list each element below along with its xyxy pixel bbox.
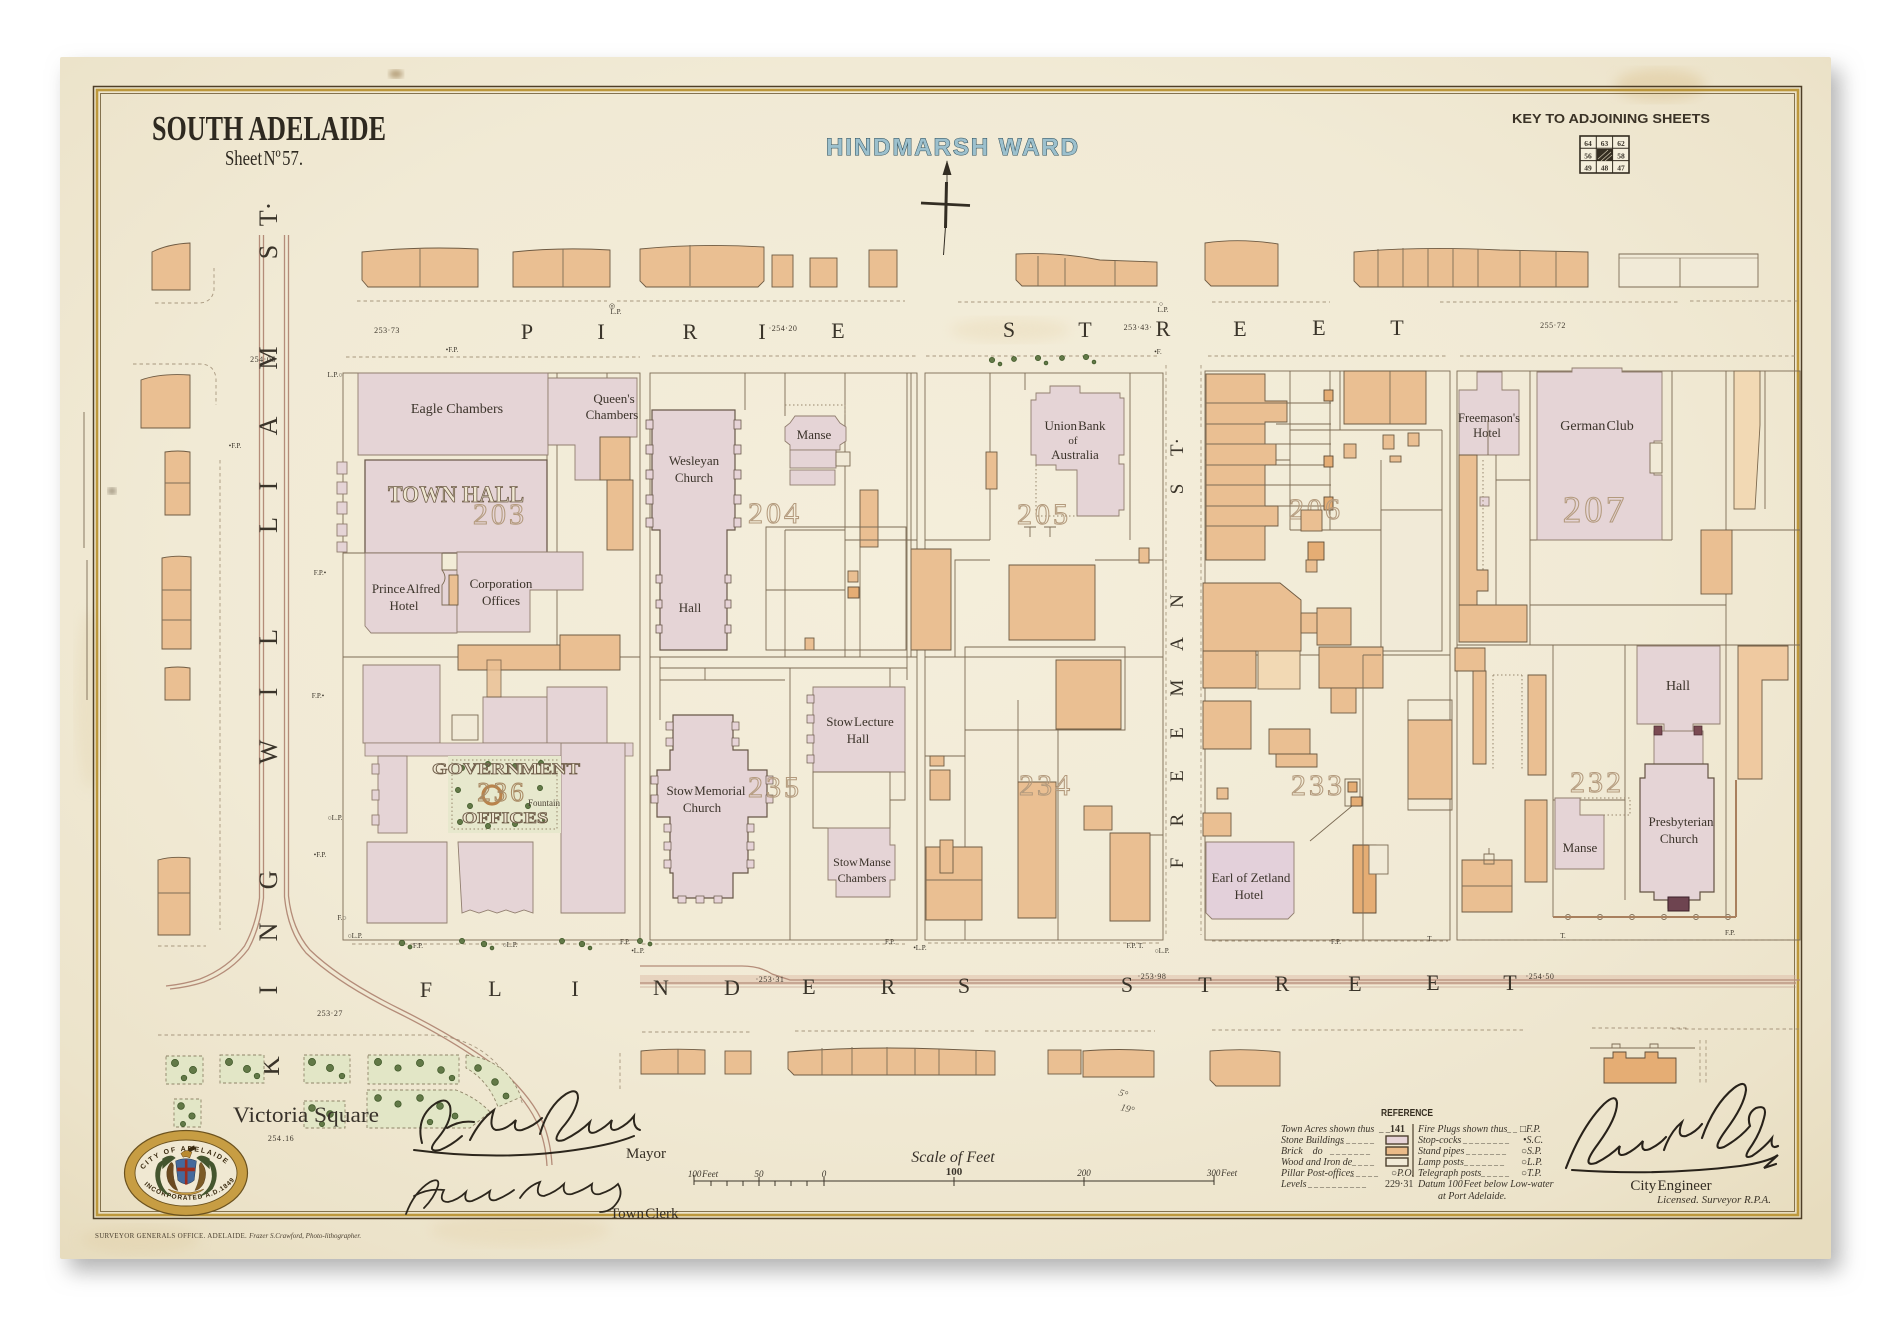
svg-text:255·72: 255·72 (1540, 321, 1566, 330)
svg-text:N: N (653, 975, 669, 1000)
svg-text:Eagle Chambers: Eagle Chambers (411, 402, 503, 417)
svg-text:0: 0 (822, 1169, 827, 1179)
svg-text:Hotel: Hotel (390, 598, 419, 613)
svg-text:○S.P.: ○S.P. (1521, 1146, 1542, 1157)
svg-text:58: 58 (1617, 151, 1625, 160)
svg-text:62: 62 (1617, 139, 1625, 148)
svg-text:Church: Church (683, 800, 722, 815)
svg-text:W: W (254, 739, 283, 764)
svg-text:GOVERNMENT: GOVERNMENT (432, 761, 580, 778)
svg-text:47: 47 (1617, 164, 1625, 173)
svg-text:German Club: German Club (1560, 419, 1634, 434)
svg-text:F: F (420, 977, 432, 1002)
svg-text:I: I (254, 986, 283, 995)
svg-text:Brick do: Brick do (1281, 1146, 1323, 1157)
svg-text:Manse: Manse (1563, 840, 1598, 855)
svg-text:Manse: Manse (797, 427, 832, 442)
svg-text:□F.P.: □F.P. (1520, 1124, 1541, 1135)
svg-text:204: 204 (748, 497, 802, 530)
svg-text:Prince Alfred: Prince Alfred (372, 581, 441, 596)
svg-text:SURVEYOR GENERALS OFFICE. ADEL: SURVEYOR GENERALS OFFICE. ADELAIDE. Fraz… (95, 1232, 361, 1240)
svg-text:S: S (254, 245, 283, 259)
svg-text:233: 233 (1291, 769, 1345, 802)
svg-text:Stand pipes: Stand pipes (1418, 1146, 1464, 1157)
svg-text:Hotel: Hotel (1473, 426, 1501, 440)
svg-text:R: R (881, 974, 896, 999)
svg-text:254·06: 254·06 (250, 355, 276, 364)
svg-text:Presbyterian: Presbyterian (1649, 814, 1714, 829)
svg-text:T·: T· (254, 202, 283, 227)
svg-text:·254·50: ·254·50 (1526, 972, 1555, 981)
svg-text:F.P.•: F.P.• (312, 692, 325, 700)
svg-text:Sheet Nº 57.: Sheet Nº 57. (225, 146, 303, 170)
svg-text:F.P.: F.P. (1725, 929, 1735, 937)
svg-text:F.P.: F.P. (620, 938, 630, 946)
svg-text:236: 236 (477, 777, 527, 807)
svg-text:I: I (254, 688, 283, 697)
svg-text:S: S (1003, 317, 1015, 342)
svg-text:E: E (1167, 727, 1188, 739)
svg-text:Earl of Zetland: Earl of Zetland (1212, 870, 1291, 885)
svg-text:Datum 100 Feet below Low-water: Datum 100 Feet below Low-water (1417, 1179, 1554, 1190)
svg-text:F: F (1167, 858, 1188, 869)
svg-text:Chambers: Chambers (837, 871, 888, 885)
svg-text:Fountain: Fountain (528, 798, 561, 808)
svg-text:205: 205 (1017, 498, 1071, 531)
svg-text:T.: T. (1560, 932, 1566, 940)
svg-text:D: D (724, 975, 740, 1000)
svg-text:SOUTH ADELAIDE: SOUTH ADELAIDE (152, 109, 386, 148)
svg-text:at Port Adelaide.: at Port Adelaide. (1438, 1191, 1506, 1202)
svg-text:I: I (597, 319, 604, 344)
svg-text:A: A (1167, 637, 1188, 651)
svg-text:F.P.•: F.P.• (314, 569, 327, 577)
svg-text:E: E (1426, 970, 1439, 995)
svg-text:L.P.: L.P. (611, 308, 622, 316)
svg-text:_ _ _ _ _: _ _ _ _ _ (1349, 1169, 1379, 1178)
svg-text:Telegraph posts: Telegraph posts (1418, 1168, 1481, 1179)
svg-text:Offices: Offices (482, 593, 520, 608)
svg-text:REFERENCE: REFERENCE (1381, 1108, 1433, 1119)
svg-text:E: E (831, 318, 844, 343)
svg-text:Fire Plugs shown thus: Fire Plugs shown thus (1417, 1124, 1507, 1135)
svg-text:Stop-cocks: Stop-cocks (1418, 1135, 1461, 1146)
svg-text:Hotel: Hotel (1235, 887, 1264, 902)
svg-text:E: E (1233, 316, 1246, 341)
svg-text:Victoria Square: Victoria Square (233, 1102, 379, 1127)
svg-text:232: 232 (1570, 766, 1624, 799)
svg-text:·253·98: ·253·98 (1138, 972, 1167, 981)
svg-text:·254·20: ·254·20 (769, 324, 798, 333)
svg-text:L: L (254, 517, 283, 533)
svg-text:_ _ _ _: _ _ _ _ (1351, 1158, 1375, 1167)
svg-text:_ _: _ _ (1378, 1124, 1391, 1134)
svg-text:234: 234 (1019, 769, 1073, 802)
svg-text:_ _ _ _ _ _ _: _ _ _ _ _ _ _ (1465, 1147, 1507, 1156)
svg-text:R: R (1167, 813, 1188, 826)
svg-text:Corporation: Corporation (470, 576, 533, 591)
svg-text:T: T (1198, 972, 1212, 997)
svg-text:Hall: Hall (847, 731, 870, 746)
svg-text:Levels: Levels (1280, 1179, 1307, 1190)
svg-text:E: E (802, 974, 815, 999)
svg-text:_ _ _ _ _ _: _ _ _ _ _ _ (1339, 1136, 1375, 1145)
svg-text:63: 63 (1601, 139, 1609, 148)
svg-text:L.P.: L.P. (1158, 306, 1169, 314)
svg-text:G: G (254, 871, 283, 890)
svg-text:•F.P.: •F.P. (446, 346, 459, 354)
svg-text:S: S (1167, 484, 1188, 495)
svg-text:Mayor: Mayor (626, 1146, 666, 1162)
svg-text:Hall: Hall (1666, 679, 1690, 694)
svg-text:F.P. T.: F.P. T. (1126, 942, 1143, 950)
svg-text:L: L (488, 976, 501, 1001)
svg-text:_ _ _ _ _ _ _ _ _ _: _ _ _ _ _ _ _ _ _ _ (1307, 1180, 1367, 1189)
svg-text:48: 48 (1601, 164, 1609, 173)
svg-text:50: 50 (755, 1169, 765, 1179)
svg-text:•F.P.: •F.P. (314, 851, 327, 859)
svg-text:_ _ _ _ _ _ _: _ _ _ _ _ _ _ (1463, 1158, 1505, 1167)
svg-text:○L.P.: ○L.P. (502, 941, 517, 949)
svg-text:○L.P.: ○L.P. (347, 932, 362, 940)
svg-text:T·: T· (1167, 438, 1188, 456)
svg-text:R: R (1156, 316, 1171, 341)
svg-text:56: 56 (1584, 151, 1592, 160)
svg-text:Scale of Feet: Scale of Feet (911, 1149, 995, 1166)
svg-text:S: S (958, 973, 970, 998)
svg-text:I: I (571, 976, 578, 1001)
svg-text:○L.P.: ○L.P. (1521, 1157, 1542, 1168)
svg-text:Town Clerk: Town Clerk (610, 1206, 679, 1222)
svg-text:○L.P.: ○L.P. (327, 814, 342, 822)
svg-text:141: 141 (1390, 1124, 1405, 1135)
svg-text:F.P.: F.P. (885, 938, 895, 946)
svg-text:S: S (1121, 972, 1133, 997)
svg-text:207: 207 (1563, 490, 1628, 531)
svg-text:•F.P.: •F.P. (229, 442, 242, 450)
svg-text:T: T (1503, 970, 1517, 995)
svg-text:Church: Church (675, 470, 714, 485)
svg-text:254 .16: 254 .16 (268, 1134, 294, 1143)
svg-text:_ _: _ _ (1506, 1125, 1518, 1134)
svg-text:Australia: Australia (1051, 447, 1099, 462)
svg-text:L.P.○: L.P.○ (327, 371, 342, 379)
svg-text:100: 100 (946, 1166, 963, 1178)
svg-text:64: 64 (1584, 139, 1592, 148)
svg-text:F.○: F.○ (337, 914, 346, 922)
svg-text:OFFICES: OFFICES (462, 810, 548, 827)
svg-text:I: I (254, 482, 283, 491)
svg-text:Stone Buildings: Stone Buildings (1281, 1135, 1344, 1146)
svg-text:Stow Manse: Stow Manse (833, 855, 891, 869)
svg-text:•F.: •F. (1154, 348, 1162, 356)
svg-text:Freemason's: Freemason's (1458, 411, 1520, 425)
svg-text:_ _ _ _ _ _ _ _: _ _ _ _ _ _ _ _ (1462, 1136, 1510, 1145)
svg-text:Pillar Post-offices: Pillar Post-offices (1280, 1168, 1354, 1179)
svg-text:N: N (1167, 594, 1188, 608)
svg-text:_ _ _ _ _: _ _ _ _ _ (1480, 1169, 1510, 1178)
svg-text:•S.C.: •S.C. (1523, 1135, 1543, 1146)
svg-text:R: R (683, 319, 698, 344)
svg-text:Stow Memorial: Stow Memorial (666, 783, 745, 798)
svg-text:Licensed. Surveyor R.P.A.: Licensed. Surveyor R.P.A. (1656, 1194, 1771, 1206)
svg-text:•L.P.: •L.P. (631, 947, 645, 955)
svg-text:E: E (1348, 971, 1361, 996)
svg-text:Lamp posts: Lamp posts (1417, 1157, 1464, 1168)
svg-text:Hall: Hall (679, 600, 702, 615)
svg-text:Town Acres shown thus: Town Acres shown thus (1281, 1124, 1374, 1135)
svg-text:T: T (1078, 317, 1092, 342)
svg-text:T: T (1390, 315, 1404, 340)
svg-text:100 Feet: 100 Feet (688, 1169, 719, 1179)
svg-text:E: E (1312, 315, 1325, 340)
svg-text:M: M (1167, 679, 1188, 696)
svg-text:P: P (521, 319, 533, 344)
svg-text:R: R (1275, 971, 1290, 996)
svg-text:300 Feet: 300 Feet (1206, 1168, 1238, 1178)
svg-text:Wesleyan: Wesleyan (669, 453, 720, 468)
svg-text:·253·31: ·253·31 (756, 975, 785, 984)
svg-text:N: N (254, 922, 283, 941)
svg-text:Queen's: Queen's (593, 391, 634, 406)
svg-text:_ _ _ _ _ _ _: _ _ _ _ _ _ _ (1329, 1147, 1371, 1156)
svg-text:229·31: 229·31 (1385, 1179, 1413, 1190)
svg-text:F.P.: F.P. (413, 942, 423, 950)
svg-text:○L.P.: ○L.P. (1154, 947, 1169, 955)
svg-text:F.P.: F.P. (1331, 938, 1341, 946)
svg-text:T.: T. (1427, 935, 1433, 943)
svg-text:Wood and Iron de: Wood and Iron de (1281, 1157, 1353, 1168)
svg-text:Stow Lecture: Stow Lecture (826, 714, 894, 729)
svg-text:•L.P.: •L.P. (913, 944, 927, 952)
svg-text:KEY TO ADJOINING SHEETS: KEY TO ADJOINING SHEETS (1512, 111, 1710, 126)
svg-text:235: 235 (748, 771, 802, 804)
svg-text:Chambers: Chambers (586, 407, 639, 422)
svg-text:200: 200 (1077, 1168, 1091, 1178)
svg-text:A: A (254, 416, 283, 435)
svg-text:I: I (758, 319, 765, 344)
svg-text:City Engineer: City Engineer (1630, 1178, 1711, 1194)
svg-text:○P.O.: ○P.O. (1391, 1168, 1414, 1179)
svg-text:253·73: 253·73 (374, 326, 400, 335)
svg-text:253·43·: 253·43· (1124, 323, 1153, 332)
svg-text:E: E (1167, 770, 1188, 782)
svg-text:203: 203 (473, 498, 527, 531)
svg-text:49: 49 (1584, 164, 1592, 173)
svg-text:Union Bank: Union Bank (1044, 418, 1106, 433)
svg-text:Church: Church (1660, 831, 1699, 846)
svg-text:of: of (1068, 435, 1078, 447)
svg-text:○T.P.: ○T.P. (1521, 1168, 1542, 1179)
svg-text:253·27: 253·27 (317, 1009, 343, 1018)
svg-text:L: L (254, 629, 283, 645)
